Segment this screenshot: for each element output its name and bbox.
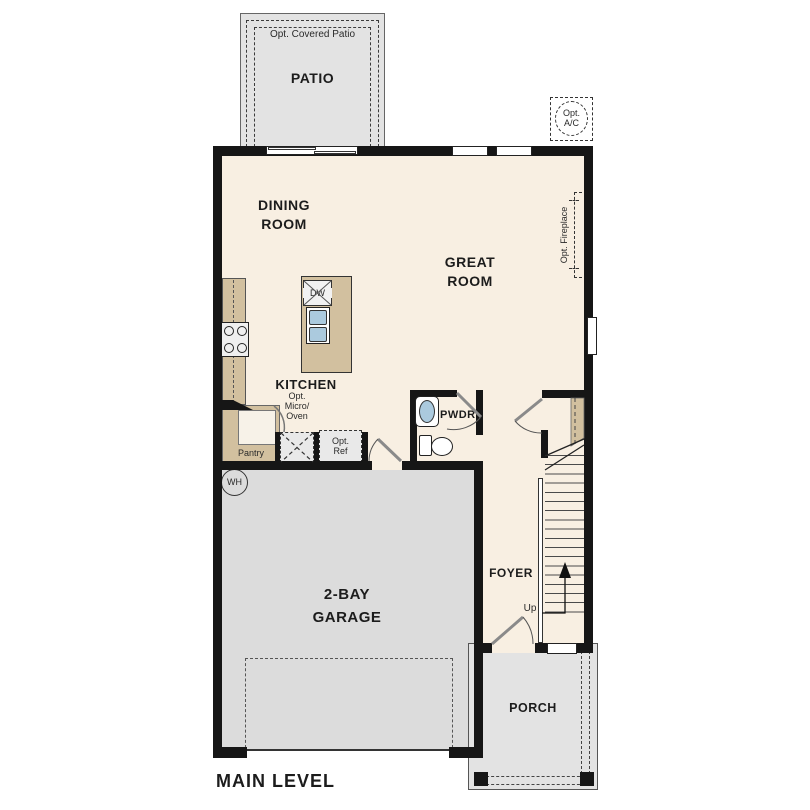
kitchen-label: KITCHEN <box>266 377 346 392</box>
dishwasher-label: DW <box>303 288 332 298</box>
opt-ac-label: Opt. A/C <box>550 108 593 128</box>
toilet-bowl <box>431 437 453 456</box>
front-door-opening <box>492 643 535 653</box>
opt-covered-patio-label: Opt. Covered Patio <box>250 30 375 40</box>
garage-wall-top <box>402 461 483 470</box>
great-room-window <box>496 146 532 156</box>
opt-micro-oven-line1: Opt. <box>275 391 319 401</box>
opt-ac-label-line2: A/C <box>550 118 593 128</box>
garage-wall-top <box>213 461 372 470</box>
wall-stub <box>213 400 233 410</box>
patio-slider-panel <box>314 151 356 154</box>
water-heater-label: WH <box>221 477 248 487</box>
porch-dashed-line <box>476 784 590 785</box>
right-wall-window <box>587 317 597 355</box>
opt-ref-label: Opt. Ref <box>319 436 362 456</box>
great-room-window <box>452 146 488 156</box>
porch-slab <box>468 643 598 790</box>
great-room-line2: ROOM <box>420 272 520 291</box>
sink-basin <box>309 310 327 325</box>
porch-dashed-line <box>589 651 590 784</box>
foyer-label: FOYER <box>484 566 538 580</box>
opt-ac-label-line1: Opt. <box>550 108 593 118</box>
garage-label: 2-BAY GARAGE <box>287 583 407 629</box>
cooktop-burner <box>237 343 247 353</box>
stair-handrail <box>538 478 543 643</box>
stair-treads <box>545 455 584 615</box>
front-wall <box>535 643 547 653</box>
garage-wall-right <box>474 461 483 758</box>
front-wall <box>483 643 492 653</box>
opt-fireplace-label: Opt. Fireplace <box>559 190 571 280</box>
closet-wall-stub <box>541 430 548 458</box>
front-wall <box>577 643 593 653</box>
great-room-line1: GREAT <box>420 253 520 272</box>
dining-room-label: DINING ROOM <box>234 196 334 234</box>
dining-room-line1: DINING <box>234 196 334 215</box>
garage-wall-stub <box>213 747 247 758</box>
opt-oven-box <box>280 432 314 463</box>
opt-ref-line1: Opt. <box>319 436 362 446</box>
patio-slider-panel <box>268 147 316 150</box>
porch-dashed-line <box>476 776 590 777</box>
pantry-label: Pantry <box>222 448 280 458</box>
porch-post <box>580 772 594 786</box>
pwdr-sink-bowl <box>419 400 435 423</box>
plan-title: MAIN LEVEL <box>216 771 416 792</box>
great-room-label: GREAT ROOM <box>420 253 520 291</box>
floor-plan: Opt. Covered Patio PATIO Opt. A/C DW Pan… <box>0 0 810 810</box>
porch-post <box>474 772 488 786</box>
wall-left <box>213 146 222 758</box>
cooktop-burner <box>237 326 247 336</box>
patio-covered-outline-inner <box>254 27 371 147</box>
garage-wall-stub <box>449 747 483 758</box>
pwdr-label: PWDR <box>440 409 486 421</box>
wall-stub <box>362 432 368 463</box>
opt-ref-line2: Ref <box>319 446 362 456</box>
cooktop-burner <box>224 326 234 336</box>
opt-micro-oven-line3: Oven <box>275 411 319 421</box>
dining-room-line2: ROOM <box>234 215 334 234</box>
cooktop-burner <box>224 343 234 353</box>
garage-door-track-dashed <box>245 658 453 748</box>
garage-line2: GARAGE <box>287 606 407 629</box>
sink-basin <box>309 327 327 342</box>
wall-right <box>584 146 593 653</box>
opt-micro-oven-label: Opt. Micro/ Oven <box>275 391 319 421</box>
pantry-interior <box>238 410 276 445</box>
porch-label: PORCH <box>483 701 583 715</box>
patio-label: PATIO <box>240 70 385 86</box>
garage-door-line <box>247 749 449 751</box>
garage-line1: 2-BAY <box>287 583 407 606</box>
stairs-up-label: Up <box>520 604 540 614</box>
porch-dashed-line <box>581 651 582 784</box>
front-sidelite-window <box>547 643 577 654</box>
opt-micro-oven-line2: Micro/ <box>275 401 319 411</box>
